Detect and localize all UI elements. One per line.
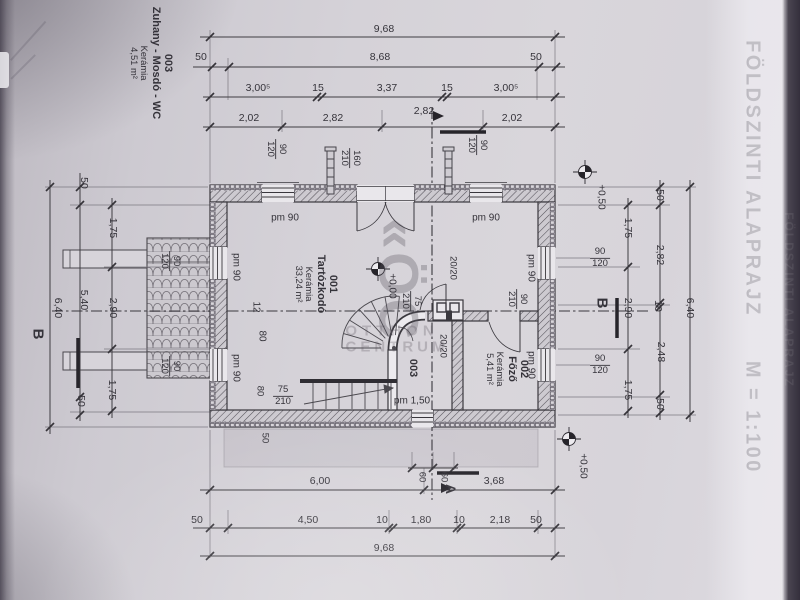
dim: 50 <box>530 515 542 527</box>
dim-total-top: 9,68 <box>374 24 394 36</box>
dim-total-bottom: 9,68 <box>374 543 394 555</box>
dim: 6,00 <box>310 476 330 488</box>
dim: 1,75 <box>106 218 118 238</box>
window-size: 90120 <box>159 356 181 376</box>
dim: 1,80 <box>411 515 431 527</box>
window-size: 90120 <box>590 247 610 269</box>
dim: 6,40 <box>51 298 63 318</box>
parapet: pm 90 <box>271 212 299 223</box>
dim: 50 <box>74 395 86 407</box>
dim: 10 <box>376 515 388 527</box>
pipe-elements <box>325 147 454 194</box>
dim: 6,40 <box>683 298 695 318</box>
photo-edge-notch <box>0 52 9 88</box>
pillar-size: 20/20 <box>447 256 458 280</box>
section-letter-b: B <box>593 298 610 309</box>
parapet: pm 90 <box>230 253 241 281</box>
room-001-label: 001TartózkodóKerámia33,24 m² <box>293 255 339 313</box>
parapet: pm 90 <box>230 354 241 382</box>
dim: 50 <box>77 177 89 189</box>
parapet: pm 90 <box>472 212 500 223</box>
parapet: pm 90 <box>525 351 536 379</box>
pencil-mark <box>10 21 46 61</box>
dim: 50 <box>653 398 665 410</box>
dim: 3,37 <box>377 83 397 95</box>
floor-plan-photo: «ÖC OTTHON CENTRUM 003Zuhany - Mosdó - W… <box>0 0 800 600</box>
dim: 5,40 <box>77 290 89 310</box>
dim: 50 <box>191 515 203 527</box>
dim: 1,75 <box>621 380 633 400</box>
stair-note: 80 <box>254 386 265 397</box>
watermark-text-1: OTTHON <box>345 323 438 340</box>
window-size: 90120 <box>590 354 610 376</box>
paper-fold-right <box>706 0 784 600</box>
section-line-a <box>432 108 486 500</box>
dim: 2,02 <box>239 113 259 125</box>
room-002-label: 002FőzőKerámia5,41 m² <box>484 352 530 387</box>
foundation-outline <box>224 429 538 467</box>
dim: 50 <box>530 52 542 64</box>
ink-bleed-ghost-text: FÖLDSZINTI ALAPRAJZ <box>782 212 796 388</box>
dim: 10 <box>453 515 465 527</box>
dim: 2,90 <box>106 298 118 318</box>
parapet: pm 1,50 <box>394 395 430 406</box>
photo-edge-left <box>0 0 15 600</box>
room-003-label: 003 <box>407 359 419 377</box>
dim: 2,90 <box>621 298 633 318</box>
section-letter-b: B <box>29 329 46 340</box>
side-room-block: 003Zuhany - Mosdó - WCKerámia4,51 m² <box>128 7 174 119</box>
dim: 3,00⁵ <box>494 83 519 95</box>
stair-note: 80 <box>256 330 267 341</box>
interior-walls <box>428 311 538 410</box>
pillar-20x20 <box>433 300 463 320</box>
dim: 8,68 <box>370 52 390 64</box>
door-size: 75210 <box>273 385 293 407</box>
dim: 2,48 <box>654 342 666 362</box>
window-size: 90120 <box>466 135 488 155</box>
dim: 2,82 <box>323 113 343 125</box>
terrace <box>63 238 210 378</box>
dim: 50 <box>195 52 207 64</box>
dim: 60 <box>438 472 449 483</box>
dim: 3,68 <box>484 476 504 488</box>
kitchen-door <box>489 321 520 352</box>
dim: 60 <box>416 472 427 483</box>
window-size: 90120 <box>159 251 181 271</box>
dim: 15 <box>312 83 324 95</box>
dim: 2,18 <box>490 515 510 527</box>
dim: 15 <box>441 83 453 95</box>
dim: 10 <box>651 300 663 312</box>
dim: 4,50 <box>298 515 318 527</box>
dim: 50 <box>259 433 270 444</box>
window-size: 90120 <box>265 139 287 159</box>
parapet: pm 90 <box>525 254 536 282</box>
section-letter-a: A <box>442 484 458 494</box>
elevation: +0,50 <box>595 184 606 209</box>
elevation: +0,50 <box>577 453 588 478</box>
dim: 3,00⁵ <box>246 83 271 95</box>
stair-note: 12 <box>250 301 261 312</box>
dim: 2,82 <box>653 245 665 265</box>
dim: 1,75 <box>621 218 633 238</box>
dim: 2,82 <box>414 106 434 118</box>
dim: 50 <box>653 189 665 201</box>
door-size: 90210 <box>506 289 528 309</box>
dim: 1,75 <box>105 380 117 400</box>
watermark-text-2: CENTRUM <box>346 339 449 356</box>
door-size: 160210 <box>339 148 361 168</box>
dim: 2,02 <box>502 113 522 125</box>
